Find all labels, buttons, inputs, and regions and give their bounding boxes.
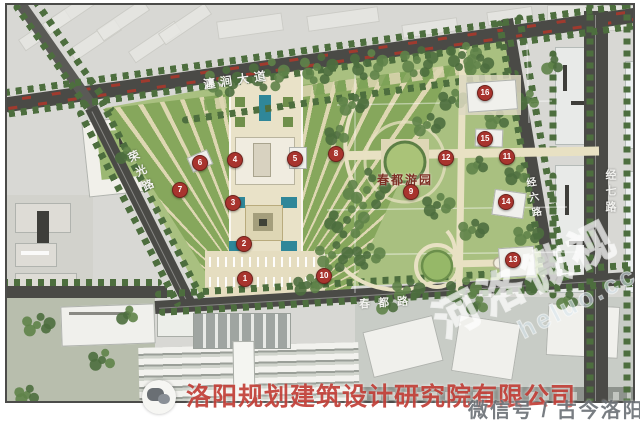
map-marker-1: 1 xyxy=(237,271,253,287)
wechat-bubble xyxy=(158,394,170,404)
map-marker-8: 8 xyxy=(328,146,344,162)
wechat-icon xyxy=(142,380,176,414)
map-marker-3: 3 xyxy=(225,195,241,211)
map-marker-4: 4 xyxy=(227,152,243,168)
map-marker-14: 14 xyxy=(498,194,514,210)
map-marker-5: 5 xyxy=(287,151,303,167)
map-marker-7: 7 xyxy=(172,182,188,198)
map-marker-10: 10 xyxy=(316,268,332,284)
map-marker-15: 15 xyxy=(477,131,493,147)
site-plan-map: 瀍涧大道 荣光路 春都路 经六路 经七路 春都游园 12345678910111… xyxy=(5,3,635,403)
map-marker-12: 12 xyxy=(438,150,454,166)
map-marker-2: 2 xyxy=(236,236,252,252)
map-marker-11: 11 xyxy=(499,149,515,165)
road-label-jing7: 经七路 xyxy=(602,169,618,217)
map-marker-16: 16 xyxy=(477,85,493,101)
map-marker-9: 9 xyxy=(403,184,419,200)
map-marker-6: 6 xyxy=(192,155,208,171)
